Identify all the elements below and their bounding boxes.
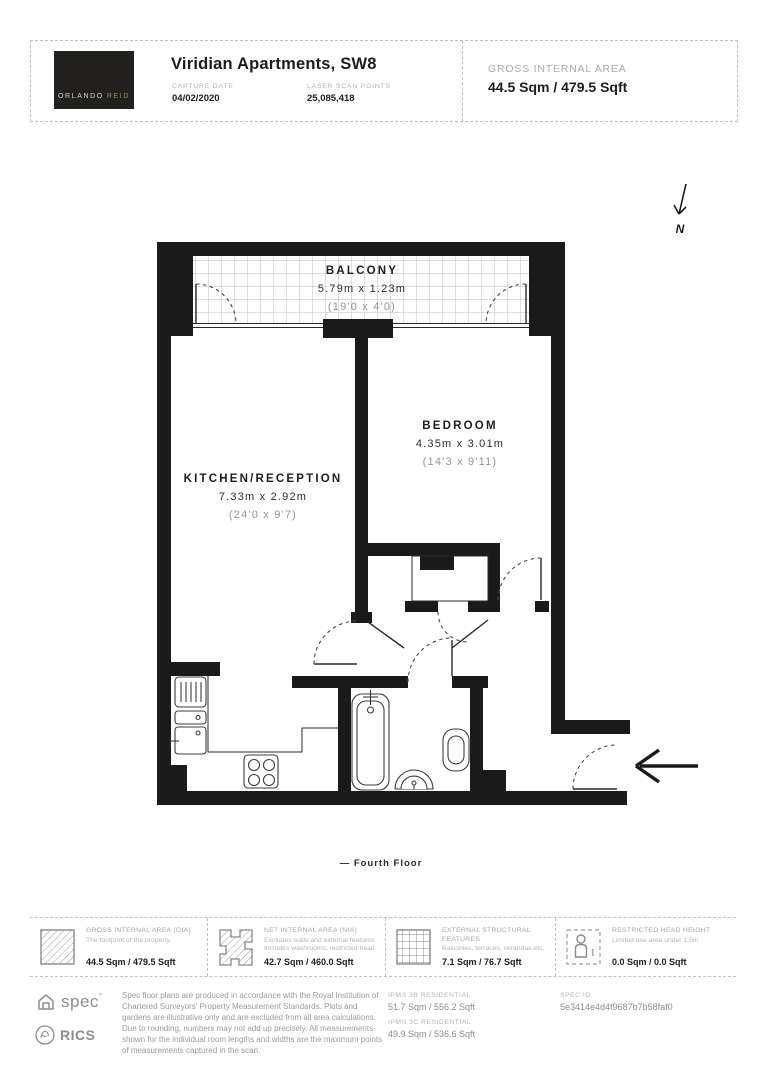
floor-level-label: — Fourth Floor <box>296 858 466 869</box>
rics-lion-icon <box>34 1024 56 1046</box>
legend-gia-value: 44.5 Sqm / 479.5 Sqft <box>86 957 176 967</box>
legend-nia-desc: Excludes walls and external features. In… <box>264 937 379 954</box>
property-title: Viridian Apartments, SW8 <box>171 55 377 74</box>
balcony-dim-metric: 5.79m x 1.23m <box>318 283 406 295</box>
kitchen-dim-metric: 7.33m x 2.92m <box>219 491 307 503</box>
legend-restricted-label: RESTRICTED HEAD HEIGHT <box>612 927 730 936</box>
hatch-floorplate-icon <box>217 927 255 967</box>
laser-scan-label: LASER SCAN POINTS <box>307 83 391 90</box>
kitchen-name: KITCHEN/RECEPTION <box>184 473 343 485</box>
diagonal-hatch-square-icon <box>39 927 77 967</box>
legend-item-external: EXTERNAL STRUCTURAL FEATURES Balconies, … <box>385 918 555 976</box>
floor-plan-svg: N <box>0 130 768 890</box>
kitchen-reception-label: KITCHEN/RECEPTION 7.33m x 2.92m (24'0 x … <box>184 473 343 521</box>
bathroom-fixtures <box>352 690 469 790</box>
legend-item-restricted: I RESTRICTED HEAD HEIGHT Limited use are… <box>555 918 736 976</box>
spec-logo: spec° <box>36 992 102 1012</box>
legend-external-desc: Balconies, terraces, verandas etc. <box>442 945 549 954</box>
grid-square-icon <box>395 927 433 967</box>
laser-scan-value: 25,085,418 <box>307 93 391 104</box>
person-dashed-square-icon: I <box>565 927 603 967</box>
entrance-door <box>573 745 617 789</box>
north-label: N <box>676 222 685 236</box>
gross-internal-area-label: GROSS INTERNAL AREA <box>488 63 627 75</box>
legend-item-nia: NET INTERNAL AREA (NIA) Excludes walls a… <box>207 918 385 976</box>
hob-icon <box>244 755 278 788</box>
logo-word-orlando: ORLANDO <box>58 93 104 100</box>
legend-external-label: EXTERNAL STRUCTURAL FEATURES <box>442 927 549 944</box>
toilet-icon <box>443 729 469 771</box>
rics-logo: RICS <box>34 1024 95 1046</box>
spec-id-label: SPEC ID <box>560 992 673 999</box>
legend-restricted-value: 0.0 Sqm / 0.0 Sqft <box>612 957 687 967</box>
floorplan-page: ORLANDO REID Viridian Apartments, SW8 CA… <box>0 0 768 1080</box>
rics-logo-text: RICS <box>60 1027 95 1043</box>
orlando-reid-logo: ORLANDO REID <box>54 51 134 109</box>
entrance-arrow <box>636 750 698 782</box>
legend-item-gia: GROSS INTERNAL AREA (GIA) The footprint … <box>30 918 207 976</box>
legend-restricted-desc: Limited use area under 1.5m <box>612 937 730 946</box>
area-legend: GROSS INTERNAL AREA (GIA) The footprint … <box>30 917 736 977</box>
bedroom-name: BEDROOM <box>422 420 497 432</box>
kitchen-dim-imperial: (24'0 x 9'7) <box>229 509 297 521</box>
bathtub-icon <box>352 690 389 790</box>
balcony-dim-imperial: (19'0 x 4'0) <box>328 301 396 313</box>
legend-gia-label: GROSS INTERNAL AREA (GIA) <box>86 927 201 936</box>
ipms-3b-value: 51.7 Sqm / 556.2 Sqft <box>388 1002 475 1012</box>
basin-icon <box>395 770 433 789</box>
legend-gia-desc: The footprint of the property. <box>86 937 201 946</box>
svg-text:I: I <box>591 947 595 959</box>
kitchen-fixtures <box>170 676 338 788</box>
ipms-3b-block: IPMS 3B RESIDENTIAL 51.7 Sqm / 556.2 Sqf… <box>388 992 475 1012</box>
capture-date-label: CAPTURE DATE <box>172 83 234 90</box>
ipms-3c-block: IPMS 3C RESIDENTIAL 49.9 Sqm / 536.6 Sqf… <box>388 1019 475 1039</box>
ipms-3b-label: IPMS 3B RESIDENTIAL <box>388 992 475 999</box>
spec-id-value: 5e3414e4d4f9687b7b58faf0 <box>560 1002 673 1012</box>
legend-nia-value: 42.7 Sqm / 460.0 Sqft <box>264 957 354 967</box>
spec-logo-text: spec <box>61 992 99 1012</box>
north-arrow: N <box>674 184 686 236</box>
header-left-panel: ORLANDO REID Viridian Apartments, SW8 CA… <box>31 41 463 121</box>
ipms-3c-value: 49.9 Sqm / 536.6 Sqft <box>388 1029 475 1039</box>
balcony-name: BALCONY <box>326 265 398 277</box>
legend-external-value: 7.1 Sqm / 76.7 Sqft <box>442 957 522 967</box>
bedroom-dim-imperial: (14'3 x 9'11) <box>423 456 498 468</box>
capture-date-value: 04/02/2020 <box>172 93 234 104</box>
spec-id-block: SPEC ID 5e3414e4d4f9687b7b58faf0 <box>560 992 673 1012</box>
balcony-label: BALCONY 5.79m x 1.23m (19'0 x 4'0) <box>318 265 406 313</box>
ipms-3c-label: IPMS 3C RESIDENTIAL <box>388 1019 475 1026</box>
laser-scan-block: LASER SCAN POINTS 25,085,418 <box>307 83 391 104</box>
spec-house-icon <box>36 992 56 1012</box>
capture-date-block: CAPTURE DATE 04/02/2020 <box>172 83 234 104</box>
bedroom-dim-metric: 4.35m x 3.01m <box>416 438 504 450</box>
header: ORLANDO REID Viridian Apartments, SW8 CA… <box>30 40 738 122</box>
legend-nia-label: NET INTERNAL AREA (NIA) <box>264 927 379 936</box>
bedroom-label: BEDROOM 4.35m x 3.01m (14'3 x 9'11) <box>416 420 504 468</box>
walls <box>157 242 630 805</box>
logo-word-reid: REID <box>107 93 130 100</box>
disclaimer-text: Spec floor plans are produced in accorda… <box>122 990 384 1056</box>
gross-internal-area-value: 44.5 Sqm / 479.5 Sqft <box>488 79 627 95</box>
header-right-panel: GROSS INTERNAL AREA 44.5 Sqm / 479.5 Sqf… <box>463 41 737 121</box>
